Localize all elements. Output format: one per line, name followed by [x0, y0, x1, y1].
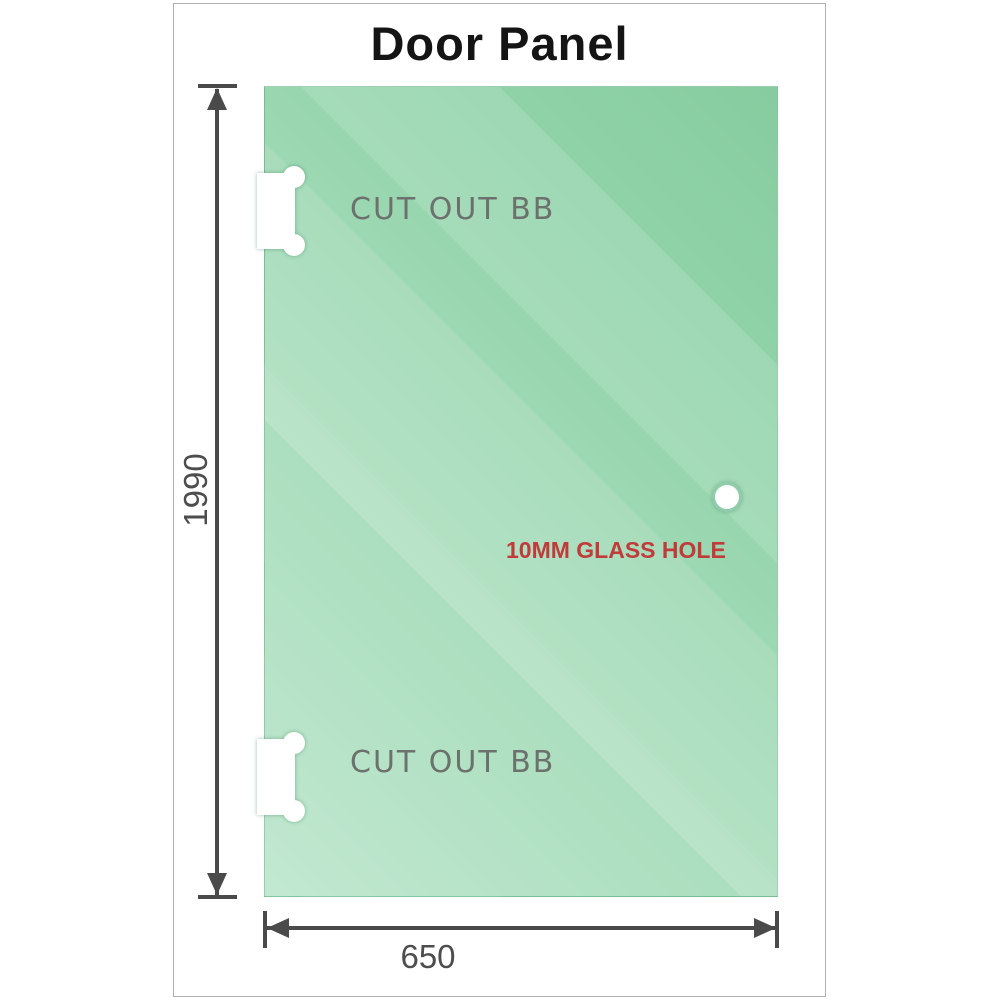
height-dimension-cap-bottom: [198, 895, 237, 899]
cutout-bottom-label: CUT OUT BB: [350, 745, 555, 780]
glass-hole-icon: [712, 482, 742, 512]
hinge-cutout-bottom-icon: [257, 731, 309, 823]
arrow-down-icon: [207, 873, 227, 895]
arrow-left-icon: [267, 918, 289, 938]
page-title: Door Panel: [173, 16, 826, 71]
width-dimension-value: 650: [358, 938, 498, 976]
hinge-cutout-top-icon: [257, 165, 309, 257]
height-dimension-line: [215, 89, 219, 895]
height-dimension-value: 1990: [178, 420, 214, 560]
arrow-right-icon: [754, 918, 776, 938]
width-dimension-line: [267, 926, 776, 930]
cutout-top-label: CUT OUT BB: [350, 192, 555, 227]
glass-hole-label: 10MM GLASS HOLE: [506, 537, 716, 564]
arrow-up-icon: [207, 88, 227, 110]
diagram-canvas: Door Panel CUT OUT BB CUT OUT BB 10MM GL…: [0, 0, 1000, 1000]
